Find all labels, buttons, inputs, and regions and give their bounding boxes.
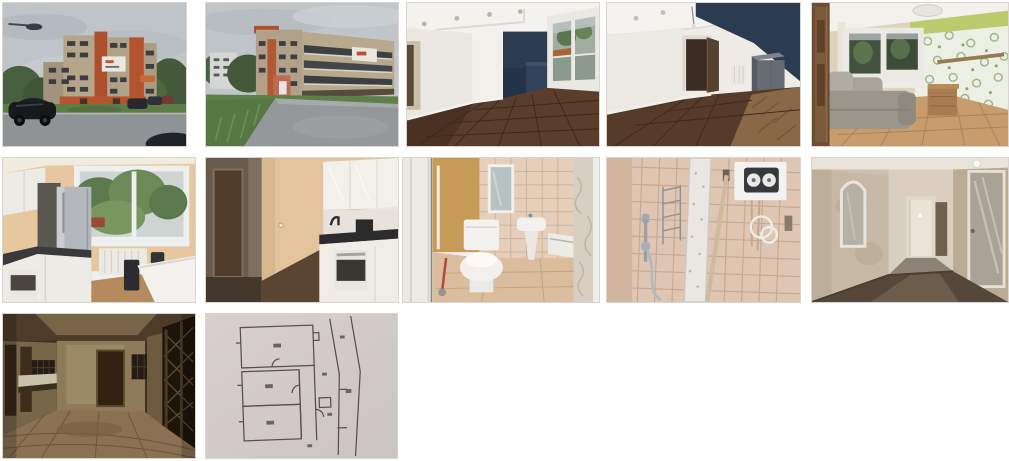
gallery-thumbnail-room-sofa-wallpaper[interactable]	[811, 2, 1009, 147]
gallery-thumbnail-floor-plan[interactable]	[205, 313, 398, 459]
gallery-thumbnail-hallway-mirror[interactable]	[811, 157, 1009, 303]
living-room-doorway-photo	[607, 3, 800, 146]
hallway-mirror-photo	[812, 158, 1008, 302]
living-room-accent-wall-photo	[407, 3, 599, 146]
shower-water-heater-photo	[607, 158, 800, 302]
gallery-thumbnail-living-room-doorway[interactable]	[606, 2, 801, 147]
gallery-thumbnail-bathroom-toilet[interactable]	[402, 157, 600, 303]
kitchen-oven-photo	[206, 158, 398, 302]
entrance-hall-photo	[3, 314, 195, 458]
kitchen-fridge-window-photo	[3, 158, 195, 302]
gallery-thumbnail-shower-water-heater[interactable]	[606, 157, 801, 303]
gallery-thumbnail-kitchen-fridge-window[interactable]	[2, 157, 196, 303]
building-exterior-front-photo	[3, 3, 186, 146]
gallery-thumbnail-building-exterior-side[interactable]	[205, 2, 399, 147]
gallery-thumbnail-living-room-accent-wall[interactable]	[406, 2, 600, 147]
gallery-thumbnail-building-exterior-front[interactable]	[2, 2, 187, 147]
floor-plan-photo	[206, 314, 397, 458]
gallery-thumbnail-kitchen-oven[interactable]	[205, 157, 399, 303]
building-exterior-side-photo	[206, 3, 398, 146]
bathroom-toilet-photo	[403, 158, 599, 302]
room-sofa-wallpaper-photo	[812, 3, 1008, 146]
gallery-thumbnail-entrance-hall[interactable]	[2, 313, 196, 459]
photo-gallery	[0, 0, 1009, 461]
